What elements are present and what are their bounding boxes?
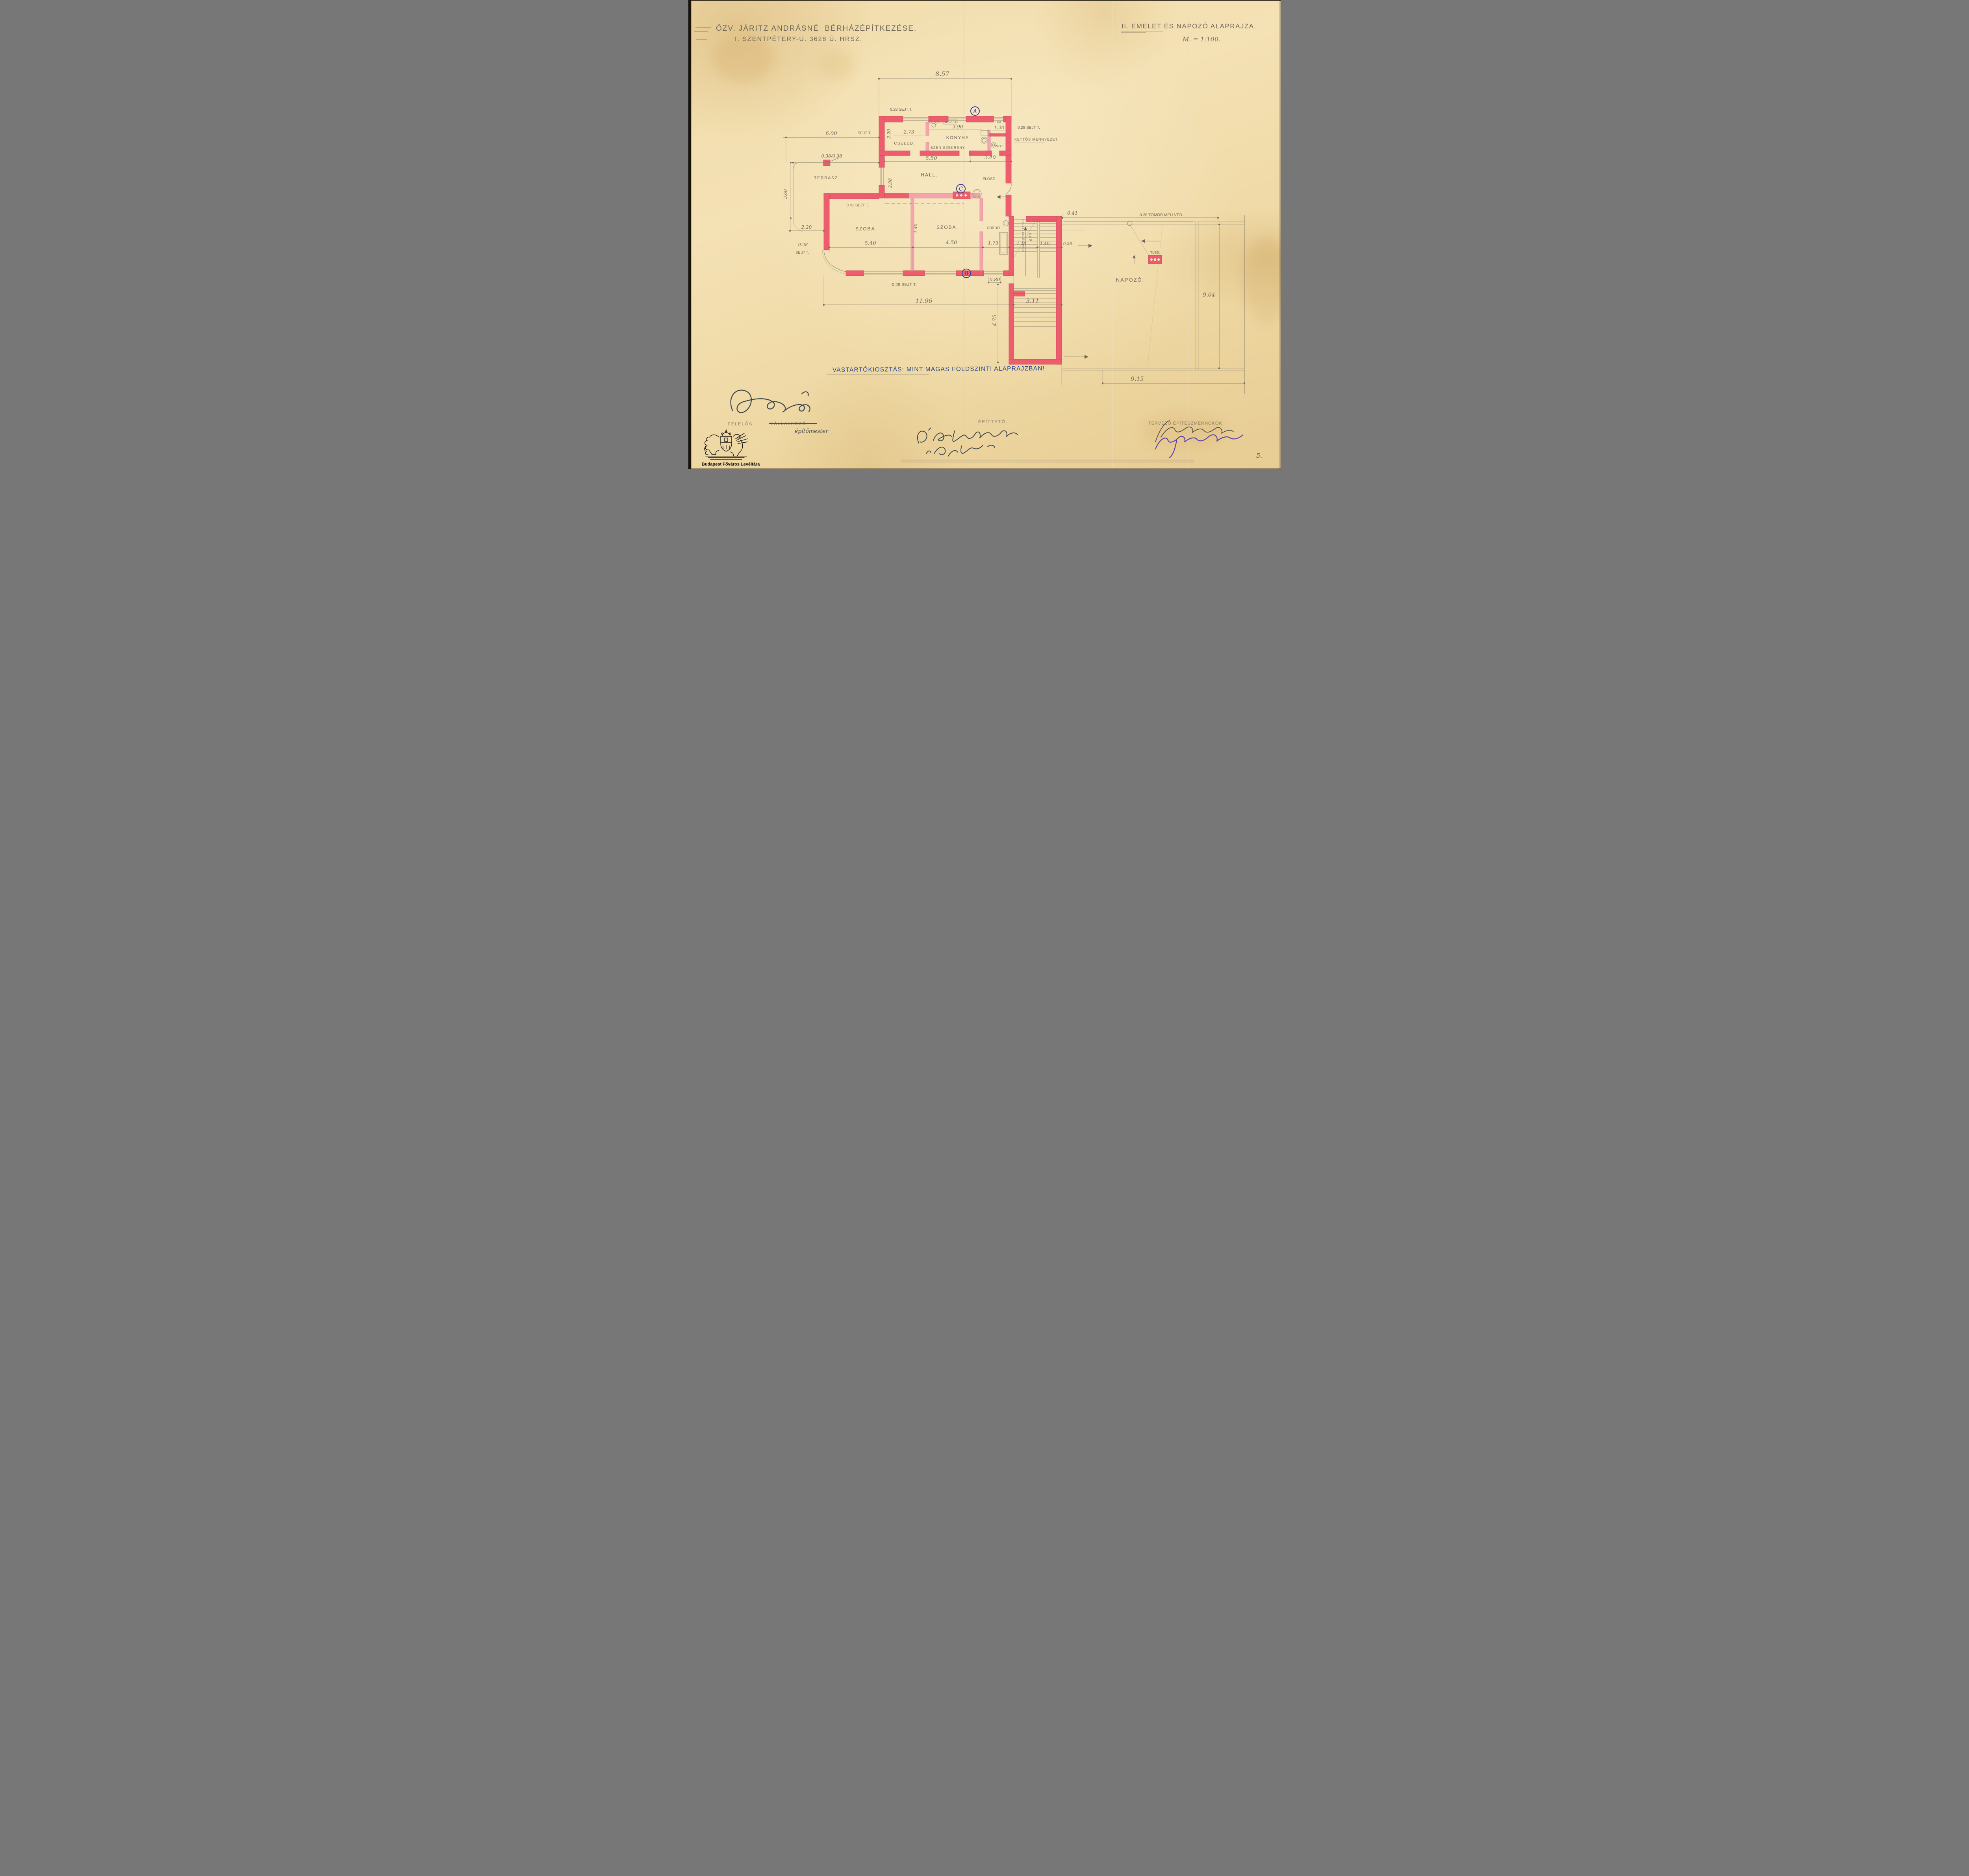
label-asztal: ASZTAL. [945, 121, 960, 124]
partition [926, 142, 929, 151]
marker-c: C [959, 186, 963, 192]
dim-sejt-right: 0.28 SEJT T. [1018, 126, 1040, 130]
room-terrasz: TERRASZ. [814, 176, 840, 180]
wall [879, 151, 910, 156]
wall [1014, 291, 1025, 296]
wall [824, 193, 879, 199]
dim-terrace-w-suffix: SEJT T. [858, 131, 871, 135]
exit-arrow [1085, 355, 1088, 359]
wall [989, 134, 1006, 136]
shower-hole [1157, 258, 1160, 261]
owner-signature-2 [926, 445, 995, 456]
dim-block-w: 11.96 [916, 297, 933, 304]
epitteto-label: ÉPÍTTETŐ: [978, 419, 1008, 424]
dim-bottom-sejt: 0.28 SEJT T. [892, 282, 917, 287]
radiator-hole [964, 194, 967, 197]
wall [1009, 359, 1062, 364]
dim-parapet: 0.28 TÖMÖR MELLVÉD. [1140, 212, 1183, 217]
wall [903, 271, 925, 276]
wall [1056, 216, 1062, 364]
epitomester-label: építőmester [795, 428, 829, 434]
coat-of-arms [705, 430, 747, 459]
dim-arrow [1088, 244, 1092, 248]
dim-terrace-w: 6.00 [826, 131, 837, 137]
shower-hole [1150, 258, 1153, 261]
blueprint-page: ÖZV. JÁRITZ ANDRÁSNÉ BÉRHÁZÉPÍTKEZÉSE. I… [688, 0, 1281, 469]
room-hall: HALL. [921, 172, 938, 178]
dim-cseled-w: 2.73 [903, 129, 914, 135]
steel-beam-note: VASTARTÓKIOSZTÁS: MINT MAGAS FÖLDSZINTI … [827, 365, 1045, 374]
dim-tread: 0.50 [1029, 233, 1033, 241]
shower-arrow [1141, 239, 1145, 243]
label-kamra: KA. [997, 121, 1002, 124]
tervezo-label: TERVEZŐ ÉPÍTÉSZMÉRNÖKÖK: [1148, 420, 1224, 426]
dim-hall-h: 2.98 [888, 178, 893, 189]
scan-edge [1279, 0, 1281, 469]
dim-szoba2: 4.50 [946, 240, 957, 246]
wall [884, 193, 909, 198]
wall [1006, 195, 1011, 216]
footer: FELELŐS VÁLLALKOZÓ: építőmester ÉPÍTTETŐ… [728, 390, 1262, 462]
wall [1009, 216, 1014, 274]
wall [920, 151, 959, 156]
partition [911, 198, 914, 271]
dim-kitchen-h: 2.20 [886, 129, 892, 139]
door-arrow [997, 195, 1006, 199]
dim-cseled-row: 5.50 [926, 156, 937, 161]
dim-stair-ext: 4.75 [992, 315, 998, 327]
room-konyha: KONYHA [946, 135, 969, 140]
room-cseled: CSELÉD. [894, 141, 915, 146]
marker-a: A [972, 108, 977, 115]
dim-deck-h: 9.04 [1203, 292, 1215, 298]
wall [879, 116, 884, 154]
drawing-title: II. EMELET ÉS NAPOZÓ ALAPRAJZA. M. = 1:1… [1121, 22, 1257, 43]
room-wc: W.C. [996, 144, 1003, 148]
label-kettos-mennyezet: KETTŐS MENNYEZET. [1014, 137, 1059, 141]
wall [909, 193, 953, 198]
radiator-hole [956, 194, 959, 197]
dim-parapet-a: 0.41 [1067, 210, 1078, 216]
plan-title: II. EMELET ÉS NAPOZÓ ALAPRAJZA. [1122, 22, 1257, 30]
wall [966, 116, 994, 122]
dim-stair-w: 3.11 [1026, 297, 1039, 304]
room-elosz: ELŐSZ. [983, 177, 996, 181]
dim-wc-row: 2.40 [984, 155, 996, 161]
wall [846, 271, 864, 276]
label-tuss: TUSS. [1150, 251, 1160, 254]
wall [999, 151, 1011, 156]
scan-edge [688, 0, 1281, 1]
owner-signature [918, 428, 1018, 443]
scale-label: M. = 1:100. [1182, 35, 1220, 43]
label-szen-szekreny: SZÉN SZEKRÉNY. [931, 146, 966, 150]
wall [1006, 116, 1011, 183]
room-furdo: FÜRDŐ. [987, 226, 1001, 230]
title-block: ÖZV. JÁRITZ ANDRÁSNÉ BÉRHÁZÉPÍTKEZÉSE. I… [694, 24, 917, 43]
dim-deck-w: 9.15 [1131, 375, 1144, 382]
dim-door: 0.80 [990, 277, 1000, 282]
page-number: 5. [1256, 452, 1262, 459]
dim-furdo: 1.73 [988, 240, 999, 246]
dim-wing-sejt: 0.41 SEJT T. [847, 203, 869, 208]
marker-b: B [964, 271, 968, 277]
archive-stamp: Budapest Főváros Levéltára [702, 430, 760, 467]
note-text: VASTARTÓKIOSZTÁS: MINT MAGAS FÖLDSZINTI … [832, 365, 1045, 373]
dim-stair-b: 1.40 [1040, 241, 1050, 246]
site-address: I. SZENTPÉTERY-U. 3628 Ú. HRSZ. [735, 35, 862, 43]
partition [980, 198, 983, 221]
radiator-hole [960, 194, 963, 197]
dim-konyha-w: 3.90 [953, 124, 963, 130]
dim-sejt-top: 0.28 SEJT T. [890, 108, 912, 112]
dim-left-sejt-a: 0.28 [798, 242, 808, 247]
dim-top-width: 8.57 [935, 70, 949, 78]
architect-signature-2 [1155, 435, 1243, 458]
contractor-signature [731, 390, 810, 412]
dim-szoba1: 5.40 [865, 241, 876, 247]
room-szoba-right: SZOBA. [936, 225, 959, 230]
dim-stair-c: 0.28 [1063, 242, 1072, 246]
room-szoba-left: SZOBA. [855, 226, 877, 232]
scan-edge [691, 0, 692, 469]
dim-pillar: 0.38/0.38 [821, 154, 842, 159]
dim-terrace-h: 3.60 [783, 189, 788, 199]
owner-title: ÖZV. JÁRITZ ANDRÁSNÉ BÉRHÁZÉPÍTKEZÉSE. [716, 24, 917, 33]
room-napozo: NAPOZÓ. [1116, 277, 1145, 283]
wall [879, 185, 884, 198]
construction-lines [786, 81, 1244, 394]
wall [1009, 284, 1014, 364]
drawing-canvas: ÖZV. JÁRITZ ANDRÁSNÉ BÉRHÁZÉPÍTKEZÉSE. I… [688, 0, 1281, 469]
wall [970, 193, 980, 198]
partition [980, 232, 983, 271]
label-lepcso: GYÁMOLÍTOTT LÉPCSŐ [1022, 219, 1025, 252]
wall [824, 193, 829, 250]
dim-kamra-w: 1.20 [994, 125, 1005, 130]
archive-name: Budapest Főváros Levéltára [702, 462, 760, 467]
shower-hole [1153, 258, 1156, 261]
dimension-lines [783, 78, 1245, 384]
felelos-label: FELELŐS [728, 421, 753, 427]
dim-partition: 1.40 [913, 224, 918, 234]
dim-left-w: 2.20 [801, 225, 812, 230]
plan-labels: 8.57 0.28 SEJT T. A ASZTAL. KA. 2.73 3.9… [783, 70, 1215, 382]
dim-left-sejt-b: SE JT T. [795, 251, 809, 254]
scan-edge [688, 468, 1281, 469]
partition [926, 122, 929, 135]
shower-arrow-up [1133, 255, 1136, 258]
